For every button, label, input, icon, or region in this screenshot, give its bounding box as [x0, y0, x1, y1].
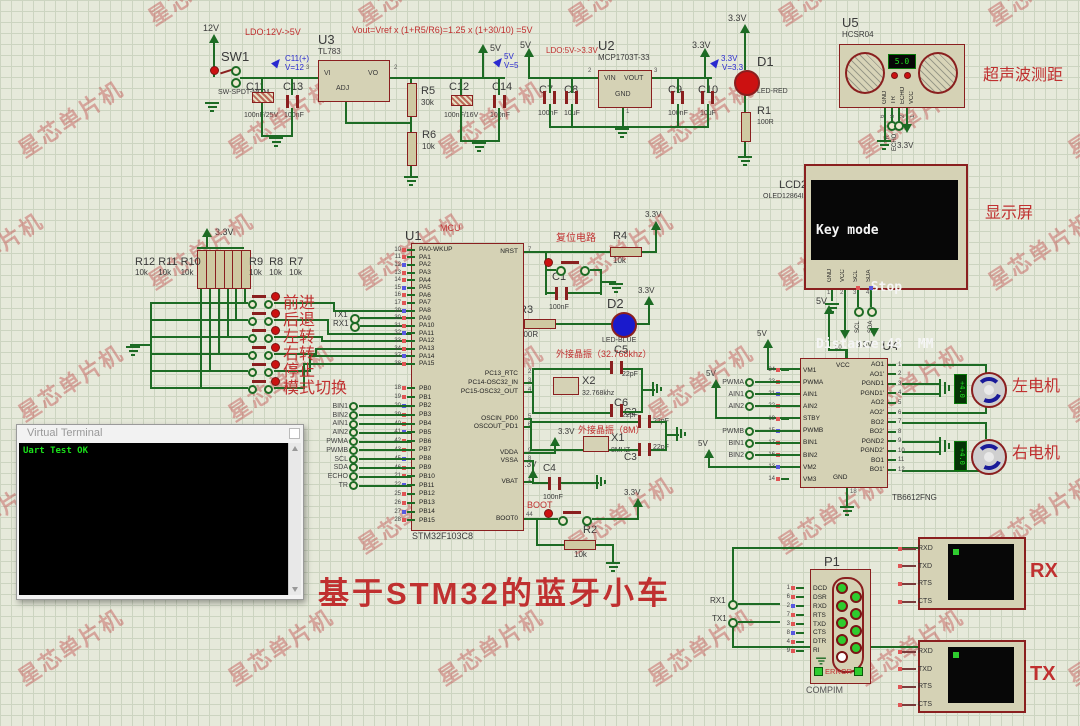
pin-name: RXD — [918, 648, 933, 655]
u5-pin-number: 3 — [890, 108, 896, 118]
pin-name: PGND2 — [862, 438, 884, 445]
cursor-block — [953, 549, 959, 555]
pin-name: PB0 — [415, 385, 431, 392]
u4-pin-row: 1 — [888, 360, 912, 370]
lcd-line: Distance:48 MM — [816, 335, 958, 354]
net-terminal-row: PWMA — [700, 376, 800, 388]
pin-number: 13 — [388, 270, 401, 276]
pin-name: CTS — [813, 629, 826, 636]
net-terminal[interactable] — [349, 402, 358, 411]
net-terminal[interactable] — [349, 437, 358, 446]
wire — [498, 108, 500, 140]
boot-button-contact[interactable] — [582, 516, 592, 526]
button-actuator[interactable] — [271, 292, 280, 301]
ground — [404, 176, 418, 186]
window-button[interactable] — [289, 428, 300, 439]
r2-value: 10k — [574, 551, 587, 559]
c4-ref[interactable]: C4 — [543, 464, 556, 475]
u1-ref[interactable]: U1 — [405, 229, 422, 243]
pin-square — [402, 386, 406, 390]
pin-number: 2 — [780, 603, 790, 609]
p1-pin-row: 9 — [780, 646, 810, 655]
x1-crystal[interactable] — [583, 436, 609, 452]
u3-body[interactable] — [318, 60, 390, 102]
mcu-pin-row: 34 PA13 — [388, 345, 518, 353]
wire — [261, 101, 263, 135]
u4-pin-row: 2 — [888, 370, 912, 380]
wire — [407, 264, 415, 266]
mcu-pin-row: 12 PA2 — [388, 261, 518, 269]
pin-square — [402, 395, 406, 399]
pin-number: 37 — [388, 353, 401, 359]
db9-pin — [836, 651, 848, 663]
wire — [650, 77, 712, 79]
button-contact — [264, 317, 273, 326]
u4-pin-row: BO1 — [806, 455, 884, 465]
c5-ref[interactable]: C5 — [614, 345, 628, 357]
mcu-right-pin: NRST — [500, 249, 518, 256]
pin-number: 18 — [388, 385, 401, 391]
p1-pin-row: 2 — [780, 602, 810, 611]
mcu-right-pin: PC13_RTC — [485, 371, 518, 378]
resistor-label: R11 10k — [158, 256, 177, 277]
resistor-label: R8 10k — [269, 256, 283, 277]
wire — [407, 310, 415, 312]
ground — [816, 658, 826, 665]
pin-square — [402, 362, 406, 366]
p1-pin-row: RXD — [813, 602, 827, 611]
ground — [472, 142, 486, 152]
error-indicator — [854, 667, 863, 676]
p1-pin-row: 4 — [780, 637, 810, 646]
c5-capacitor[interactable] — [610, 361, 623, 374]
pin-name: PB4 — [415, 420, 431, 427]
d2-ref[interactable]: D2 — [607, 297, 624, 311]
resistor-ref: R7 — [289, 256, 303, 268]
wire — [556, 323, 612, 325]
wire — [407, 493, 415, 495]
c1-capacitor[interactable] — [555, 287, 568, 300]
wire — [888, 412, 896, 414]
c10-capacitor[interactable] — [701, 91, 714, 104]
net-terminal[interactable] — [349, 428, 358, 437]
r6-ref: R6 — [422, 130, 436, 142]
wire — [388, 77, 505, 79]
wire — [732, 626, 734, 648]
rail-3v3-label: 3.3V — [897, 142, 913, 150]
pin-number: 31 — [388, 323, 401, 329]
d2-led-blue[interactable] — [611, 312, 637, 338]
wire — [902, 668, 916, 670]
watermark-text: 星芯单片机 — [1061, 600, 1080, 692]
ground — [652, 382, 662, 396]
pin-name: PB7 — [415, 446, 431, 453]
mcu-pin-row: 30 PA9 — [388, 314, 518, 322]
p1-pin-row: 1 — [780, 584, 810, 593]
sw1-actuator[interactable] — [210, 66, 219, 75]
button-actuator[interactable] — [271, 309, 280, 318]
pin-square — [402, 518, 406, 522]
d1-ref[interactable]: D1 — [757, 55, 774, 69]
power-flag-3v3 — [528, 469, 538, 478]
c14-capacitor[interactable] — [493, 95, 506, 108]
u3-ref[interactable]: U3 — [318, 33, 335, 47]
pin-name: PA5 — [415, 284, 431, 291]
watermark-text: 星芯单片机 — [771, 0, 889, 32]
sw1-contact[interactable] — [231, 78, 241, 88]
ultrasonic-distance-display: 5.0 — [888, 54, 916, 69]
power-flag-12v — [209, 34, 219, 43]
pin-square — [402, 510, 406, 514]
u4-pin-row: PGND1 — [806, 379, 884, 389]
serial-pin-row: RTS — [898, 678, 933, 696]
wire — [796, 605, 804, 607]
button-contact — [248, 300, 257, 309]
p1-error-label: ERROR — [825, 668, 852, 676]
u2-pin-number: 1 — [626, 109, 629, 115]
pin-name: BO1' — [870, 466, 884, 473]
wire — [888, 373, 896, 375]
u4-pin-row: 24 — [762, 364, 799, 376]
u2-ref[interactable]: U2 — [598, 39, 615, 53]
scl-terminal[interactable] — [854, 307, 864, 317]
pin-square — [791, 631, 795, 635]
c3-capacitor[interactable] — [638, 443, 651, 456]
wire — [536, 544, 564, 546]
sda-terminal[interactable] — [867, 307, 877, 317]
u4-right-pin-names: AO1 AO1' PGND1 PGND1' AO2 AO2' BO2 BO2' … — [806, 360, 884, 475]
net-terminal-label: AIN1 — [318, 420, 348, 427]
motor-rpm-display: +4.0 — [954, 374, 967, 404]
rx1-term-label: RX1 — [710, 597, 726, 605]
c13-capacitor[interactable] — [286, 95, 299, 108]
u3-pin-vi: VI — [324, 70, 331, 77]
wire — [345, 100, 347, 124]
pin-number: 26 — [388, 500, 401, 506]
pin-number: 34 — [388, 346, 401, 352]
mcu-pin-row: 37 PA14 — [388, 352, 518, 360]
r1-value: 100R — [757, 119, 774, 126]
wire — [707, 104, 709, 126]
scroll-down-icon[interactable] — [292, 587, 298, 592]
net-terminal[interactable] — [745, 378, 754, 387]
button-cap — [561, 261, 579, 264]
u4-pin-row: 11 — [888, 455, 912, 465]
pin-number: 10 — [388, 247, 401, 253]
net-terminal-label: PWMA — [700, 379, 744, 386]
resistor-value: 10k — [249, 268, 263, 277]
c2-ref[interactable]: C2 — [624, 408, 637, 419]
pin-number: 7 — [896, 419, 901, 425]
mcu-pin-row: 33 PA12 — [388, 337, 518, 345]
wire — [704, 57, 706, 79]
net-terminal-row: BIN1 — [318, 402, 411, 411]
net-terminal[interactable] — [745, 427, 754, 436]
u2-value: MCP1703T-33 — [598, 54, 650, 62]
net-terminal[interactable] — [349, 481, 358, 490]
sw1-contact[interactable] — [231, 66, 241, 76]
ground — [615, 128, 629, 138]
pin-name: RXD — [918, 545, 933, 552]
button-actuator[interactable] — [271, 360, 280, 369]
c4-capacitor[interactable] — [548, 477, 561, 490]
net-terminal[interactable] — [349, 420, 358, 429]
u4-right-pin-numbers: 1 2 3 4 5 6 7 8 9 10 11 12 — [888, 360, 912, 475]
u1-value: STM32F103C8 — [412, 532, 473, 541]
pin-number: 32 — [388, 330, 401, 336]
u4-pin-row: PGND2 — [806, 436, 884, 446]
r5-resistor[interactable] — [407, 83, 417, 117]
pin-square — [402, 255, 406, 259]
c13-ref[interactable]: C13 — [283, 82, 303, 94]
wire — [522, 251, 546, 253]
r4-value: 10k — [613, 257, 626, 265]
p1-ref[interactable]: P1 — [824, 555, 840, 569]
r3-resistor[interactable] — [524, 319, 556, 329]
d1-value: LED-RED — [757, 88, 788, 95]
mcu-pin-row: 26 PB13 — [388, 498, 518, 507]
pin-number: 19 — [762, 416, 775, 422]
reset-button-actuator[interactable] — [544, 258, 553, 267]
pin-name: PA14 — [415, 353, 434, 360]
wire — [533, 482, 548, 484]
c9-capacitor[interactable] — [671, 91, 684, 104]
virtual-terminal-window[interactable]: Virtual Terminal Uart Test OK — [16, 424, 304, 600]
r4-ref: R4 — [613, 231, 627, 243]
r2-ref: R2 — [583, 525, 597, 537]
button-contact — [264, 385, 273, 394]
pin-name: AO2 — [871, 399, 884, 406]
net-terminal[interactable] — [745, 451, 754, 460]
boot-button-actuator[interactable] — [544, 509, 553, 518]
c14-ref[interactable]: C14 — [492, 82, 512, 94]
pin-number: 14 — [762, 476, 775, 482]
u5-ref[interactable]: U5 — [842, 16, 859, 30]
u4-pin-row: AO2' — [806, 408, 884, 418]
resistor-ref: R10 — [181, 256, 201, 268]
wire — [796, 587, 804, 589]
wire — [291, 79, 293, 95]
c11-capacitor[interactable] — [252, 92, 274, 103]
c2-capacitor[interactable] — [638, 415, 651, 428]
resistor-ref: R12 — [135, 256, 155, 268]
rx-monitor-pins: RXD TXD RTS CTS — [898, 540, 933, 610]
wire — [948, 443, 950, 449]
wire — [755, 454, 800, 456]
wire — [623, 368, 643, 370]
r1-resistor[interactable] — [741, 112, 751, 142]
wire — [939, 437, 941, 455]
ground — [676, 427, 686, 441]
wire — [407, 279, 415, 281]
c3-ref[interactable]: C3 — [624, 453, 637, 464]
u4-pin-row: AO1' — [806, 370, 884, 380]
wire — [359, 423, 411, 425]
watermark-text: 星芯单片机 — [431, 600, 549, 692]
pin-name: PA7 — [415, 299, 431, 306]
button-actuator[interactable] — [271, 377, 280, 386]
serial-pin-row: TXD — [898, 558, 933, 576]
wire — [888, 383, 896, 385]
pin-square — [402, 316, 406, 320]
net-terminal[interactable] — [349, 411, 358, 420]
power-flag-5v — [824, 305, 834, 314]
cursor-block — [953, 652, 959, 658]
mcu-pin-row: 31 PA10 — [388, 322, 518, 330]
wire — [902, 601, 916, 603]
pin-square — [402, 324, 406, 328]
wire — [888, 459, 896, 461]
wire — [407, 325, 415, 327]
power-flag-5v — [478, 44, 488, 53]
left-motor-label: 左电机 — [1012, 379, 1060, 396]
mcu-right-pin: PC14-OSC32_IN — [468, 380, 518, 387]
net-terminal-row: PWMB — [318, 446, 411, 455]
rx1-terminal[interactable] — [728, 600, 738, 610]
net-terminal[interactable] — [349, 463, 358, 472]
c12-capacitor[interactable] — [451, 95, 473, 106]
button-contact — [264, 300, 273, 309]
pin-name: PA4 — [415, 277, 431, 284]
net-terminal[interactable] — [745, 439, 754, 448]
virtual-terminal-titlebar[interactable]: Virtual Terminal — [17, 425, 303, 443]
pin-name: PA10 — [415, 322, 434, 329]
d1-led-red[interactable] — [734, 70, 760, 96]
u3-pin-adj: ADJ — [336, 85, 349, 92]
power-flag-3v3 — [740, 24, 750, 33]
wire — [209, 287, 211, 371]
scrollbar[interactable] — [288, 443, 301, 595]
motor-rpm-display: +4.0 — [954, 441, 967, 471]
pin-name: PA12 — [415, 337, 434, 344]
mcu-net-terminals: BIN1 BIN2 AIN1 AIN2 PWMA PWMB SCL SDA EC… — [318, 402, 411, 490]
u5-pin-label: VCC — [909, 78, 915, 104]
pin-name: PA11 — [415, 330, 434, 337]
rx1-terminal[interactable] — [350, 322, 360, 332]
serial-pin-row: RXD — [898, 540, 933, 558]
net-terminal[interactable] — [349, 472, 358, 481]
r4-resistor[interactable] — [610, 247, 642, 257]
u3-value: TL783 — [318, 48, 341, 56]
wire — [407, 363, 415, 365]
pin-number: 12 — [896, 467, 905, 473]
u4-pin-row: 5 — [888, 398, 912, 408]
wire — [755, 442, 800, 444]
net-terminal[interactable] — [745, 402, 754, 411]
r6-resistor[interactable] — [407, 132, 417, 166]
pin-name: RTS — [918, 683, 932, 690]
sw1-ref[interactable]: SW1 — [221, 50, 249, 64]
x2-crystal[interactable] — [553, 377, 579, 395]
c7-capacitor[interactable] — [543, 91, 556, 104]
serial-pin-row: CTS — [898, 696, 933, 714]
pin-number: 5 — [896, 400, 901, 406]
wire — [781, 418, 789, 420]
button-actuator[interactable] — [271, 343, 280, 352]
tx1-terminal[interactable] — [728, 618, 738, 628]
u2-pin-vout: VOUT — [624, 75, 643, 82]
c8-capacitor[interactable] — [565, 91, 578, 104]
ground — [126, 346, 140, 356]
net-terminal[interactable] — [349, 455, 358, 464]
watermark-text: 星芯单片机 — [561, 0, 679, 32]
pin-name: PA13 — [415, 345, 434, 352]
key-button-label: 模式切换 — [283, 374, 347, 398]
x2-ref: X2 — [582, 376, 595, 388]
pin-square — [776, 368, 780, 372]
net-terminal-row: TR — [318, 481, 411, 490]
wire — [522, 518, 536, 520]
reset-button-contact[interactable] — [580, 266, 590, 276]
right-motor[interactable] — [971, 439, 1007, 475]
pin-square — [402, 501, 406, 505]
x2-value: 32.768khz — [582, 390, 614, 397]
pin-name: PB1 — [415, 394, 431, 401]
serial-pin-row: RXD — [898, 643, 933, 661]
p1-pin-row: RTS — [813, 611, 827, 620]
wire — [528, 57, 530, 78]
reset-section-label: 复位电路 — [556, 234, 596, 245]
note-ldo2: LDO:5V->3.3V — [546, 47, 598, 55]
wire — [407, 287, 415, 289]
net-terminal[interactable] — [349, 446, 358, 455]
pin-number: 8 — [896, 429, 901, 435]
watermark-text: 星芯单片机 — [0, 204, 49, 296]
net-terminal-label: BIN2 — [700, 452, 744, 459]
button-cap — [252, 312, 266, 315]
button-actuator[interactable] — [271, 326, 280, 335]
resistor-value: 10k — [181, 268, 201, 277]
wire — [522, 452, 556, 454]
net-terminal[interactable] — [745, 390, 754, 399]
lcd-ref[interactable]: LCD2 — [779, 180, 807, 192]
pin-square — [791, 649, 795, 653]
pin-name: PA3 — [415, 269, 431, 276]
net-terminal-row: BIN1 — [700, 437, 800, 449]
wire — [738, 621, 780, 623]
c6-capacitor[interactable] — [610, 404, 623, 417]
mcu-pin-row: 25 PB12 — [388, 490, 518, 499]
ultrasonic-section-label: 超声波测距 — [983, 68, 1063, 85]
mcu-pin-row: 15 PA5 — [388, 284, 518, 292]
wire — [622, 106, 624, 126]
p1-pin-row: 6 — [780, 593, 810, 602]
mcu-right-pin: OSCOUT_PD1 — [474, 424, 518, 431]
ground — [269, 137, 283, 147]
r2-resistor[interactable] — [564, 540, 596, 550]
pin-number: 2 — [528, 369, 531, 375]
wire — [407, 256, 415, 258]
power-flag-3v3-down — [840, 330, 850, 339]
reset-button-contact[interactable] — [556, 266, 566, 276]
ground — [877, 140, 891, 150]
net-terminal-label: PWMB — [700, 428, 744, 435]
u4-pin-row: PGND1' — [806, 389, 884, 399]
wire — [407, 348, 415, 350]
wire — [359, 458, 411, 460]
left-motor[interactable] — [971, 372, 1007, 408]
wire — [571, 104, 573, 126]
wire — [985, 422, 987, 439]
net-terminal-label: AIN1 — [700, 391, 744, 398]
net-terminal-label: PWMA — [318, 438, 348, 445]
resistor-label: R10 10k — [181, 256, 201, 277]
wire — [407, 302, 415, 304]
boot-button-contact[interactable] — [558, 516, 568, 526]
scroll-up-icon[interactable] — [292, 446, 298, 451]
wire — [796, 632, 804, 634]
resistor-value: 10k — [289, 268, 303, 277]
